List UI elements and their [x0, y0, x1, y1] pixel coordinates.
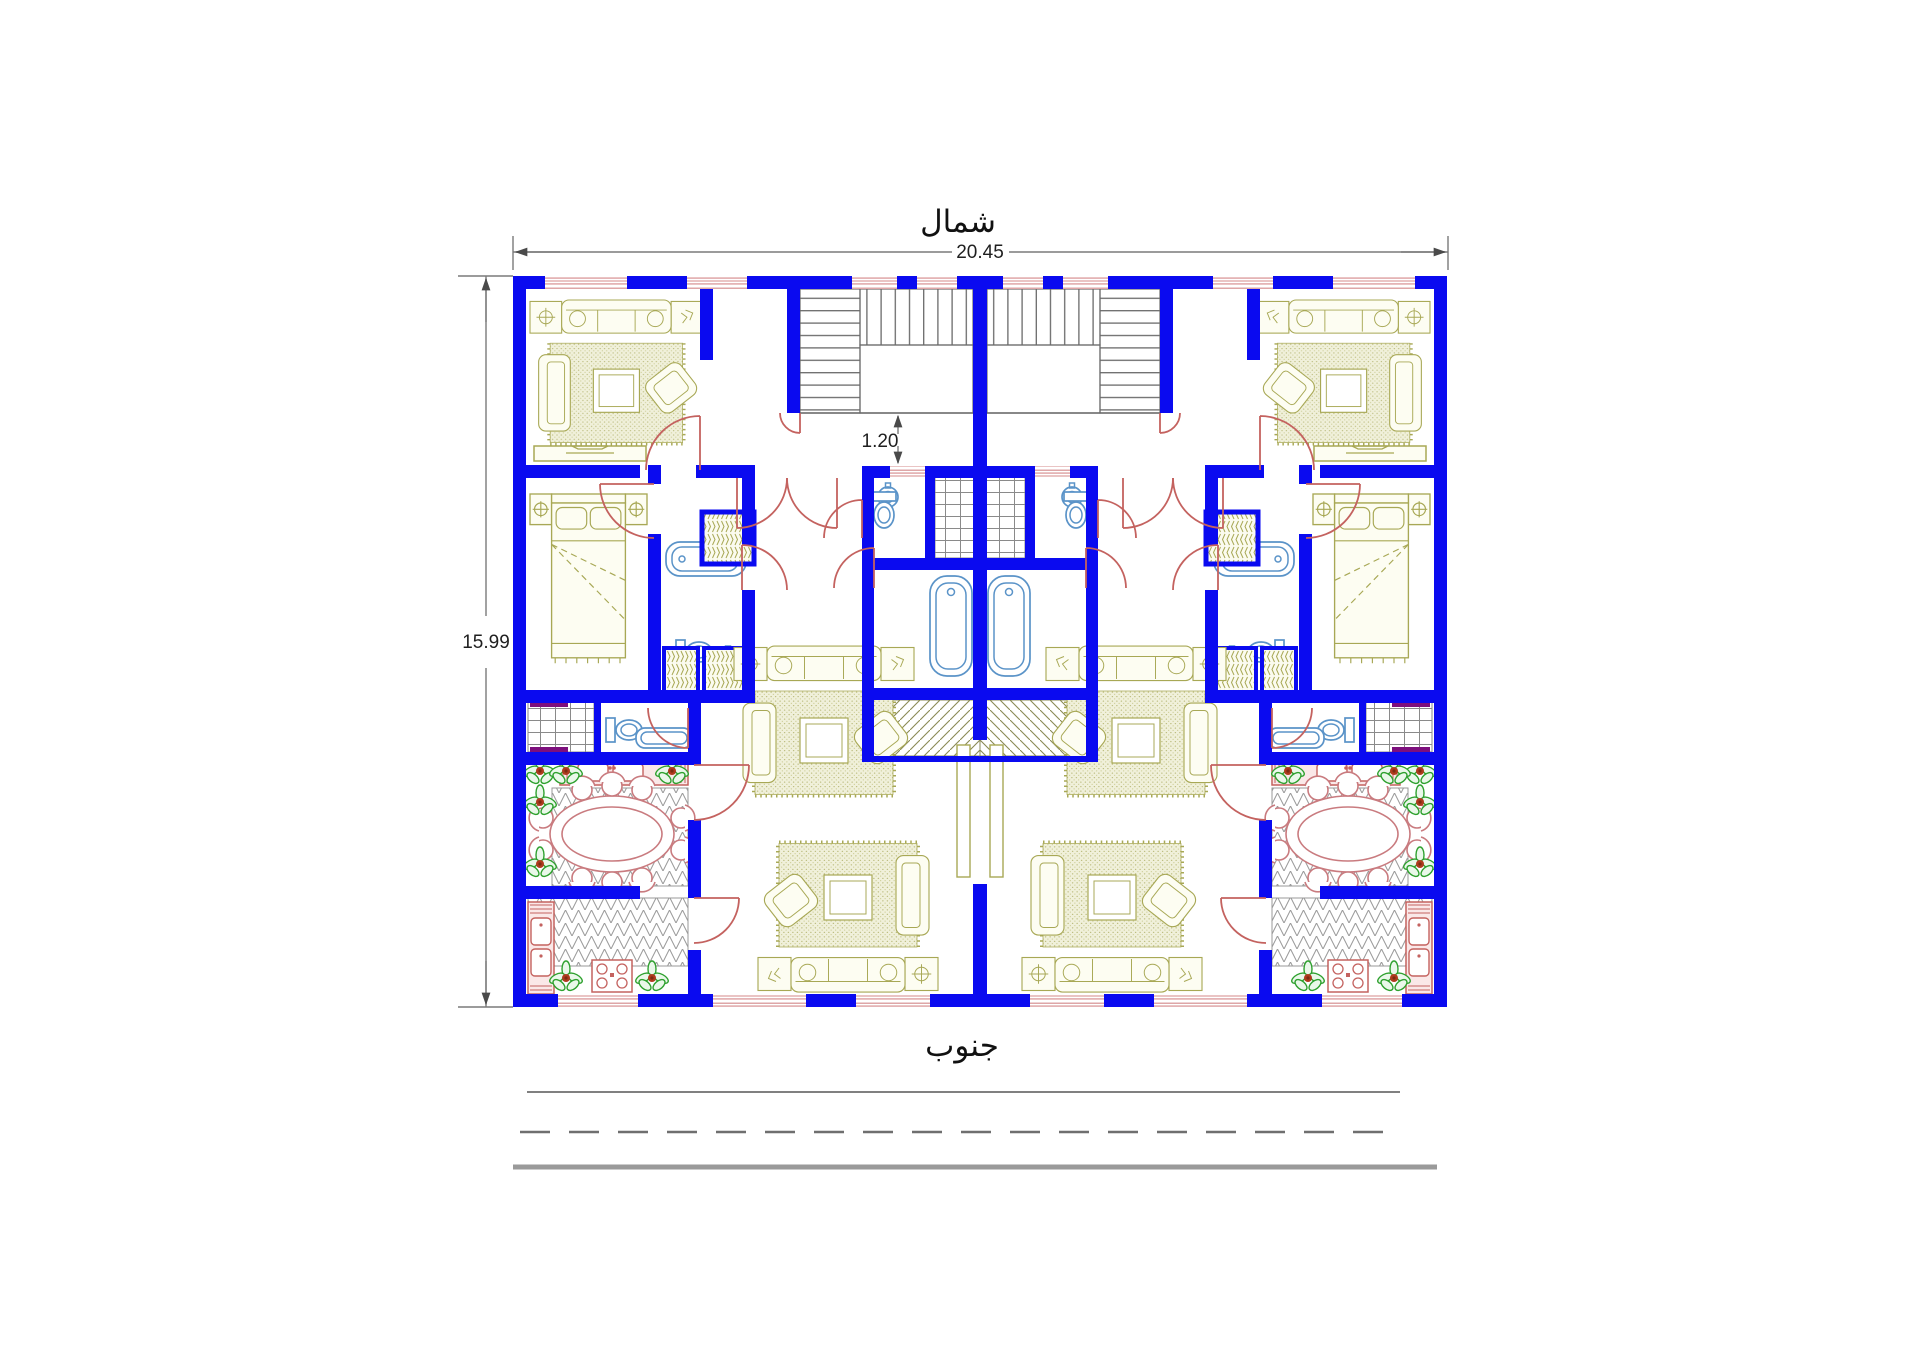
- dim-width-text: 20.45: [956, 242, 1004, 263]
- entrance-door-leaf: [787, 478, 837, 528]
- dimension-height: 15.99: [458, 276, 513, 1007]
- dim-stair-text: 1.20: [862, 431, 899, 452]
- label-north: شمال: [920, 204, 996, 240]
- stairwell: [780, 289, 973, 433]
- wc2-door: [824, 500, 862, 538]
- salon: [530, 300, 703, 461]
- central-wall: [973, 276, 987, 1007]
- bedroom: [530, 494, 647, 663]
- drawing-canvas: 20.45 15.99 1.20 شمال جنوب: [0, 0, 1920, 1346]
- apartment-left: [513, 276, 980, 1007]
- footer-lines: [513, 1092, 1437, 1167]
- dimension-width: 20.45: [513, 236, 1448, 270]
- dimension-stair: 1.20: [862, 416, 899, 463]
- center-door-leaf: [957, 745, 970, 877]
- kitchen-door: [694, 898, 739, 943]
- dim-height-text: 15.99: [462, 632, 510, 653]
- apartment-right: [980, 276, 1447, 1007]
- label-south: جنوب: [925, 1028, 999, 1064]
- dining-door: [694, 765, 749, 820]
- laundry-tile-floor: [528, 702, 594, 752]
- floor-plan-svg: 20.45 15.99 1.20 شمال جنوب: [0, 0, 1920, 1346]
